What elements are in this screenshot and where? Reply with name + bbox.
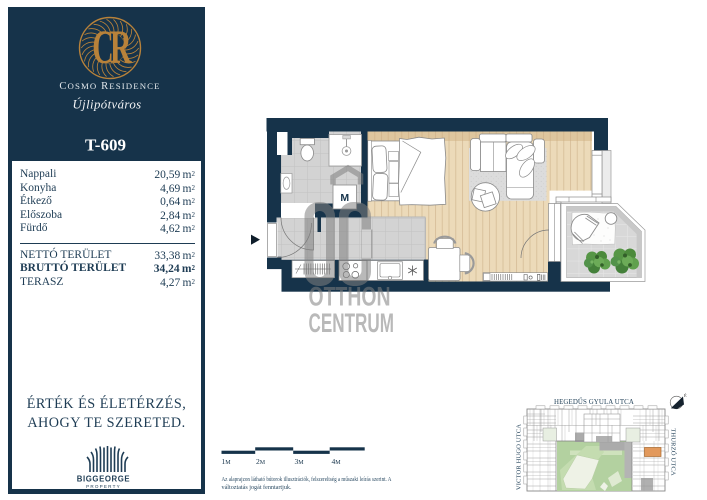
svg-text:4M: 4M [332,457,342,466]
svg-text:HEGEDŰS GYULA UTCA: HEGEDŰS GYULA UTCA [554,398,634,406]
svg-text:Az alaprajzon látható bútorok: Az alaprajzon látható bútorok illusztrác… [222,476,392,483]
svg-text:M: M [340,192,349,204]
svg-text:1M: 1M [222,457,232,466]
svg-text:VICTOR HUGO UTCA: VICTOR HUGO UTCA [516,424,523,490]
svg-text:É: É [684,393,687,398]
svg-text:2M: 2M [256,457,266,466]
svg-text:változtatás jogát fenntartjuk.: változtatás jogát fenntartjuk. [222,484,292,491]
svg-text:CENTRUM: CENTRUM [309,308,395,338]
svg-text:3M: 3M [295,457,305,466]
svg-text:THURZÓ UTCA: THURZÓ UTCA [670,428,678,476]
